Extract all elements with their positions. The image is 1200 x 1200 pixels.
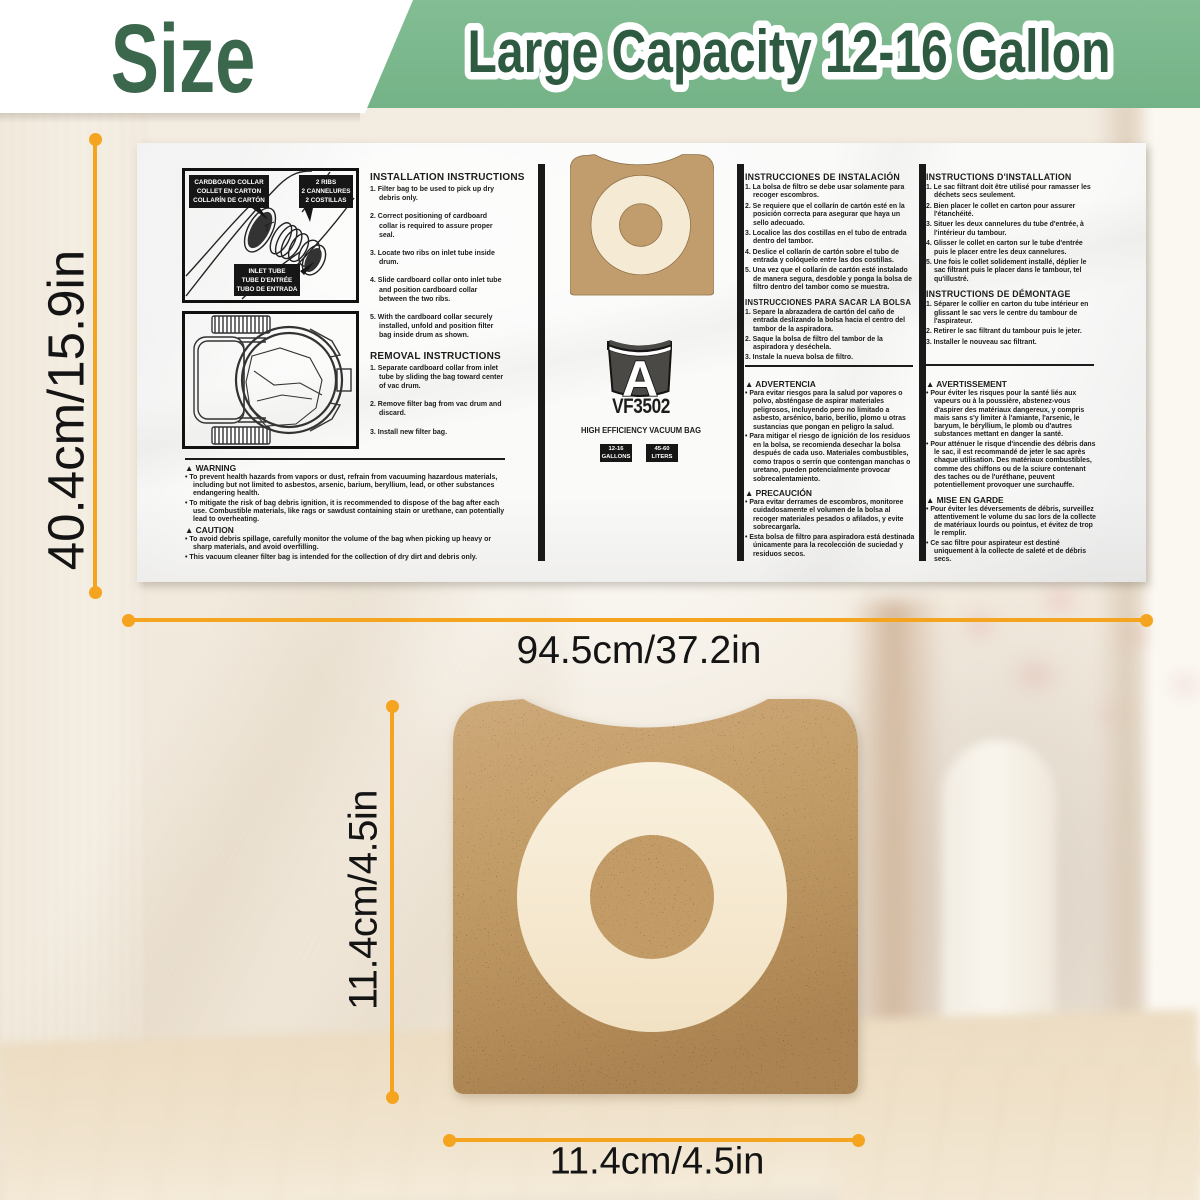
svg-text:INLET TUBE: INLET TUBE (248, 268, 285, 275)
svg-text:COLLET EN CARTON: COLLET EN CARTON (197, 188, 262, 195)
svg-text:2 RIBS: 2 RIBS (316, 179, 336, 186)
svg-text:2 CANNELURES: 2 CANNELURES (302, 188, 351, 195)
svg-text:2 COSTILLAS: 2 COSTILLAS (306, 197, 347, 204)
svg-text:COLLARÍN DE CARTÓN: COLLARÍN DE CARTÓN (193, 195, 265, 204)
svg-text:TUBE D'ENTRÉE: TUBE D'ENTRÉE (242, 275, 292, 284)
svg-text:CARDBOARD COLLAR: CARDBOARD COLLAR (194, 179, 264, 186)
svg-text:TUBO DE ENTRADA: TUBO DE ENTRADA (237, 286, 298, 293)
svg-text:Large Capacity 12-16 Gallon: Large Capacity 12-16 Gallon (468, 18, 1111, 85)
